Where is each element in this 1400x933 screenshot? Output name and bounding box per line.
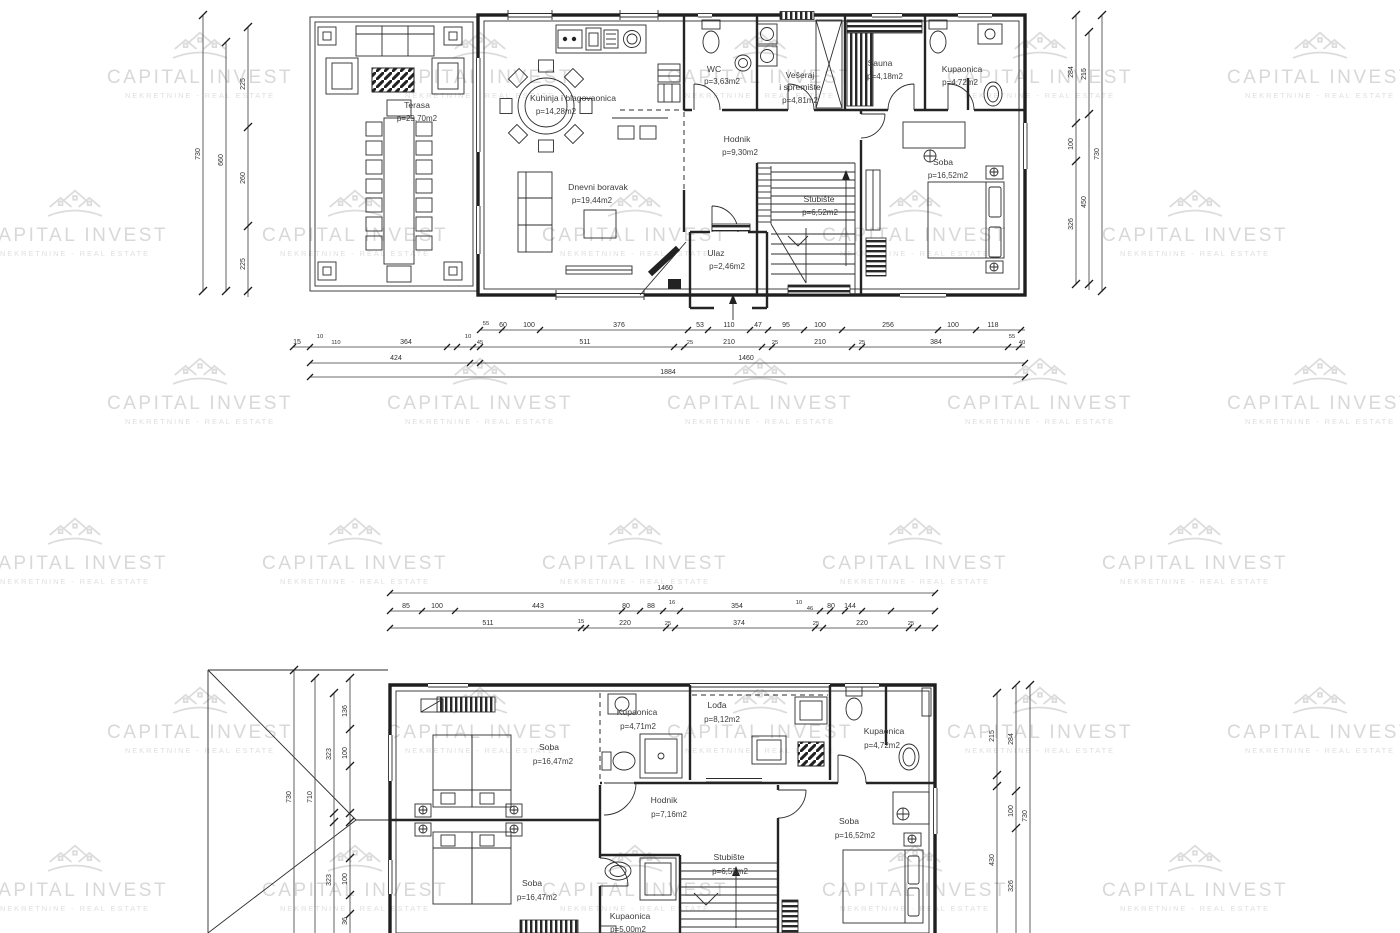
room-area-lodja: p=8,12m2 xyxy=(704,715,740,724)
dim: 88 xyxy=(647,603,655,610)
room-label-kuhinja: Kuhinja i blagovaonica xyxy=(530,93,616,103)
room-label-kupaonica2: Kupaonica xyxy=(864,726,905,736)
dim: 323 xyxy=(326,748,333,760)
dim: 15 xyxy=(578,619,584,625)
dim: 100 xyxy=(947,322,959,329)
dim: 136 xyxy=(342,705,349,717)
room-area-soba1: p=16,47m2 xyxy=(533,757,574,766)
dim: 424 xyxy=(390,355,402,362)
dim: 660 xyxy=(218,154,225,166)
dim: 1460 xyxy=(738,355,754,362)
room-area-soba: p=16,52m2 xyxy=(928,171,969,180)
dim: 511 xyxy=(579,339,590,346)
room-area-sauna: p=4,18m2 xyxy=(867,72,903,81)
dim: 25 xyxy=(772,340,778,346)
dim: 225 xyxy=(240,258,247,270)
dim: 10 xyxy=(317,334,323,340)
dim: 384 xyxy=(930,339,942,346)
dim: 284 xyxy=(1008,733,1015,745)
dim: 354 xyxy=(731,603,743,610)
dim: 46 xyxy=(807,606,813,612)
dim: 730 xyxy=(195,148,202,160)
ground-floor-plan: Terasa p=29,70m2 Kuhinja i blagovaonica … xyxy=(195,10,1106,380)
dim: 10 xyxy=(465,334,471,340)
room-area-kupaonica2: p=4,72m2 xyxy=(864,741,900,750)
dim: 100 xyxy=(1008,805,1015,817)
stair-window xyxy=(788,285,850,294)
dim: 710 xyxy=(307,791,314,803)
dim: 55 xyxy=(1009,334,1015,340)
dim: 260 xyxy=(240,172,247,184)
dim: 730 xyxy=(1022,810,1029,822)
room-area-soba3: p=16,47m2 xyxy=(517,893,558,902)
room-label-soba3: Soba xyxy=(522,878,542,888)
entry xyxy=(712,224,750,320)
dim: 85 xyxy=(402,603,410,610)
bathroom-fixtures xyxy=(929,20,1002,106)
upper-bedroom1-furniture xyxy=(415,697,522,817)
dim: 100 xyxy=(523,322,535,329)
dim: 118 xyxy=(987,322,998,329)
upper-room-labels: Soba p=16,47m2 Kupaonica p=4,71m2 Lođa p… xyxy=(517,700,905,933)
room-area-terasa: p=29,70m2 xyxy=(397,114,438,123)
dim: 210 xyxy=(814,339,826,346)
dim: 25 xyxy=(687,340,693,346)
room-label-stubiste-upper: Stubište xyxy=(713,852,744,862)
room-area-hodnik-upper: p=7,16m2 xyxy=(651,810,687,819)
dim: 443 xyxy=(532,603,544,610)
dim: 25 xyxy=(665,621,671,627)
room-area-kuhinja: p=14,28m2 xyxy=(536,107,577,116)
dim: 430 xyxy=(989,854,996,866)
room-label-kupaonica: Kupaonica xyxy=(942,64,983,74)
dim: 220 xyxy=(619,620,631,627)
dim: 225 xyxy=(240,78,247,90)
room-label-hodnik: Hodnik xyxy=(724,134,751,144)
dining-table-round xyxy=(500,60,592,152)
dim: 215 xyxy=(989,730,996,742)
terrace xyxy=(310,17,478,291)
ground-bedroom-furniture xyxy=(866,122,1004,276)
loggia-furniture xyxy=(752,697,827,766)
dim: 36 xyxy=(342,917,349,925)
dim: 40 xyxy=(1019,340,1025,346)
dim: 95 xyxy=(782,322,790,329)
room-label-kupaonica3: Kupaonica xyxy=(610,911,651,921)
dim: 60 xyxy=(499,322,507,329)
room-label-soba1: Soba xyxy=(539,742,559,752)
dim: 25 xyxy=(813,621,819,627)
room-area-stubiste-upper: p=6,52m2 xyxy=(712,867,748,876)
room-label-kupaonica1: Kupaonica xyxy=(617,707,658,717)
room-label-dnevni: Dnevni boravak xyxy=(568,182,628,192)
dim: 326 xyxy=(1008,880,1015,892)
dim: 16 xyxy=(669,600,675,606)
dim: 47 xyxy=(754,322,762,329)
dim: 10 xyxy=(796,600,802,606)
blueprint-page: CAPITAL INVESTNEKRETNINE - REAL ESTATECA… xyxy=(0,0,1400,933)
terrace-columns xyxy=(318,27,462,280)
dim: 110 xyxy=(331,340,340,346)
dim: 100 xyxy=(1068,138,1075,150)
dim: 15 xyxy=(293,339,301,346)
laundry-fixtures xyxy=(757,20,842,108)
rug xyxy=(372,68,414,92)
room-label-hodnik-upper: Hodnik xyxy=(651,795,678,805)
dim: 326 xyxy=(1068,218,1075,230)
room-label-wc: WC xyxy=(707,64,721,74)
dim: 100 xyxy=(342,747,349,759)
room-area-wc: p=3,63m2 xyxy=(704,77,740,86)
dim: 215 xyxy=(1081,68,1088,80)
dim: 450 xyxy=(1081,196,1088,208)
dim: 25 xyxy=(908,621,914,627)
dim: 25 xyxy=(859,340,865,346)
ground-stairs xyxy=(757,166,855,294)
room-area-kupaonica: p=4,72m2 xyxy=(942,78,978,87)
room-label-veseraj2: i spremište xyxy=(779,82,821,92)
dim: 110 xyxy=(723,322,734,329)
room-label-soba: Soba xyxy=(933,157,953,167)
dim: 511 xyxy=(482,620,493,627)
kitchen-fixtures xyxy=(556,25,680,139)
upper-floor-plan: Soba p=16,47m2 Kupaonica p=4,71m2 Lođa p… xyxy=(208,585,1034,933)
dim: 323 xyxy=(326,874,333,886)
room-area-soba2: p=16,52m2 xyxy=(835,831,876,840)
room-label-soba2: Soba xyxy=(839,816,859,826)
dim: 730 xyxy=(1094,148,1101,160)
dim: 1460 xyxy=(657,585,673,592)
upper-bedroom3-furniture xyxy=(415,823,578,933)
upper-bedroom2-furniture xyxy=(782,792,929,933)
room-area-kupaonica3: p=5,00m2 xyxy=(610,925,646,933)
dim: 256 xyxy=(882,322,894,329)
floor-plans-drawing: Terasa p=29,70m2 Kuhinja i blagovaonica … xyxy=(0,0,1400,933)
dim: 364 xyxy=(400,339,412,346)
room-label-ulaz: Ulaz xyxy=(707,248,724,258)
room-area-veseraj: p=4,81m2 xyxy=(782,96,818,105)
dim: 1884 xyxy=(660,369,676,376)
dim: 144 xyxy=(844,603,856,610)
room-area-kupaonica1: p=4,71m2 xyxy=(620,722,656,731)
vent-block xyxy=(780,12,814,20)
dim: 100 xyxy=(342,873,349,885)
terrace-lounge-set xyxy=(326,26,464,94)
dim: 730 xyxy=(286,791,293,803)
dim: 80 xyxy=(827,603,835,610)
dim: 374 xyxy=(733,620,745,627)
upper-windows xyxy=(386,681,939,894)
dim: 220 xyxy=(856,620,868,627)
dim: 376 xyxy=(613,322,625,329)
terrace-dining-table xyxy=(366,100,432,282)
roof-outline xyxy=(208,670,390,933)
room-area-stubiste: p=6,52m2 xyxy=(802,208,838,217)
room-label-lodja: Lođa xyxy=(707,700,726,710)
dim: 284 xyxy=(1068,66,1075,78)
dim: 210 xyxy=(723,339,735,346)
dim: 45 xyxy=(477,340,483,346)
dim: 53 xyxy=(696,322,704,329)
dim: 100 xyxy=(814,322,826,329)
room-area-hodnik: p=9,30m2 xyxy=(722,148,758,157)
upper-bathroom3-fixtures xyxy=(600,858,676,933)
dim: 80 xyxy=(622,603,630,610)
dim: 100 xyxy=(431,603,443,610)
room-label-stubiste: Stubište xyxy=(803,194,834,204)
room-label-veseraj: Vešeraj xyxy=(786,70,815,80)
room-area-ulaz: p=2,46m2 xyxy=(709,262,745,271)
room-label-sauna: Sauna xyxy=(868,58,893,68)
dim: 55 xyxy=(483,321,489,327)
room-label-terasa: Terasa xyxy=(404,100,430,110)
room-area-dnevni: p=19,44m2 xyxy=(572,196,613,205)
